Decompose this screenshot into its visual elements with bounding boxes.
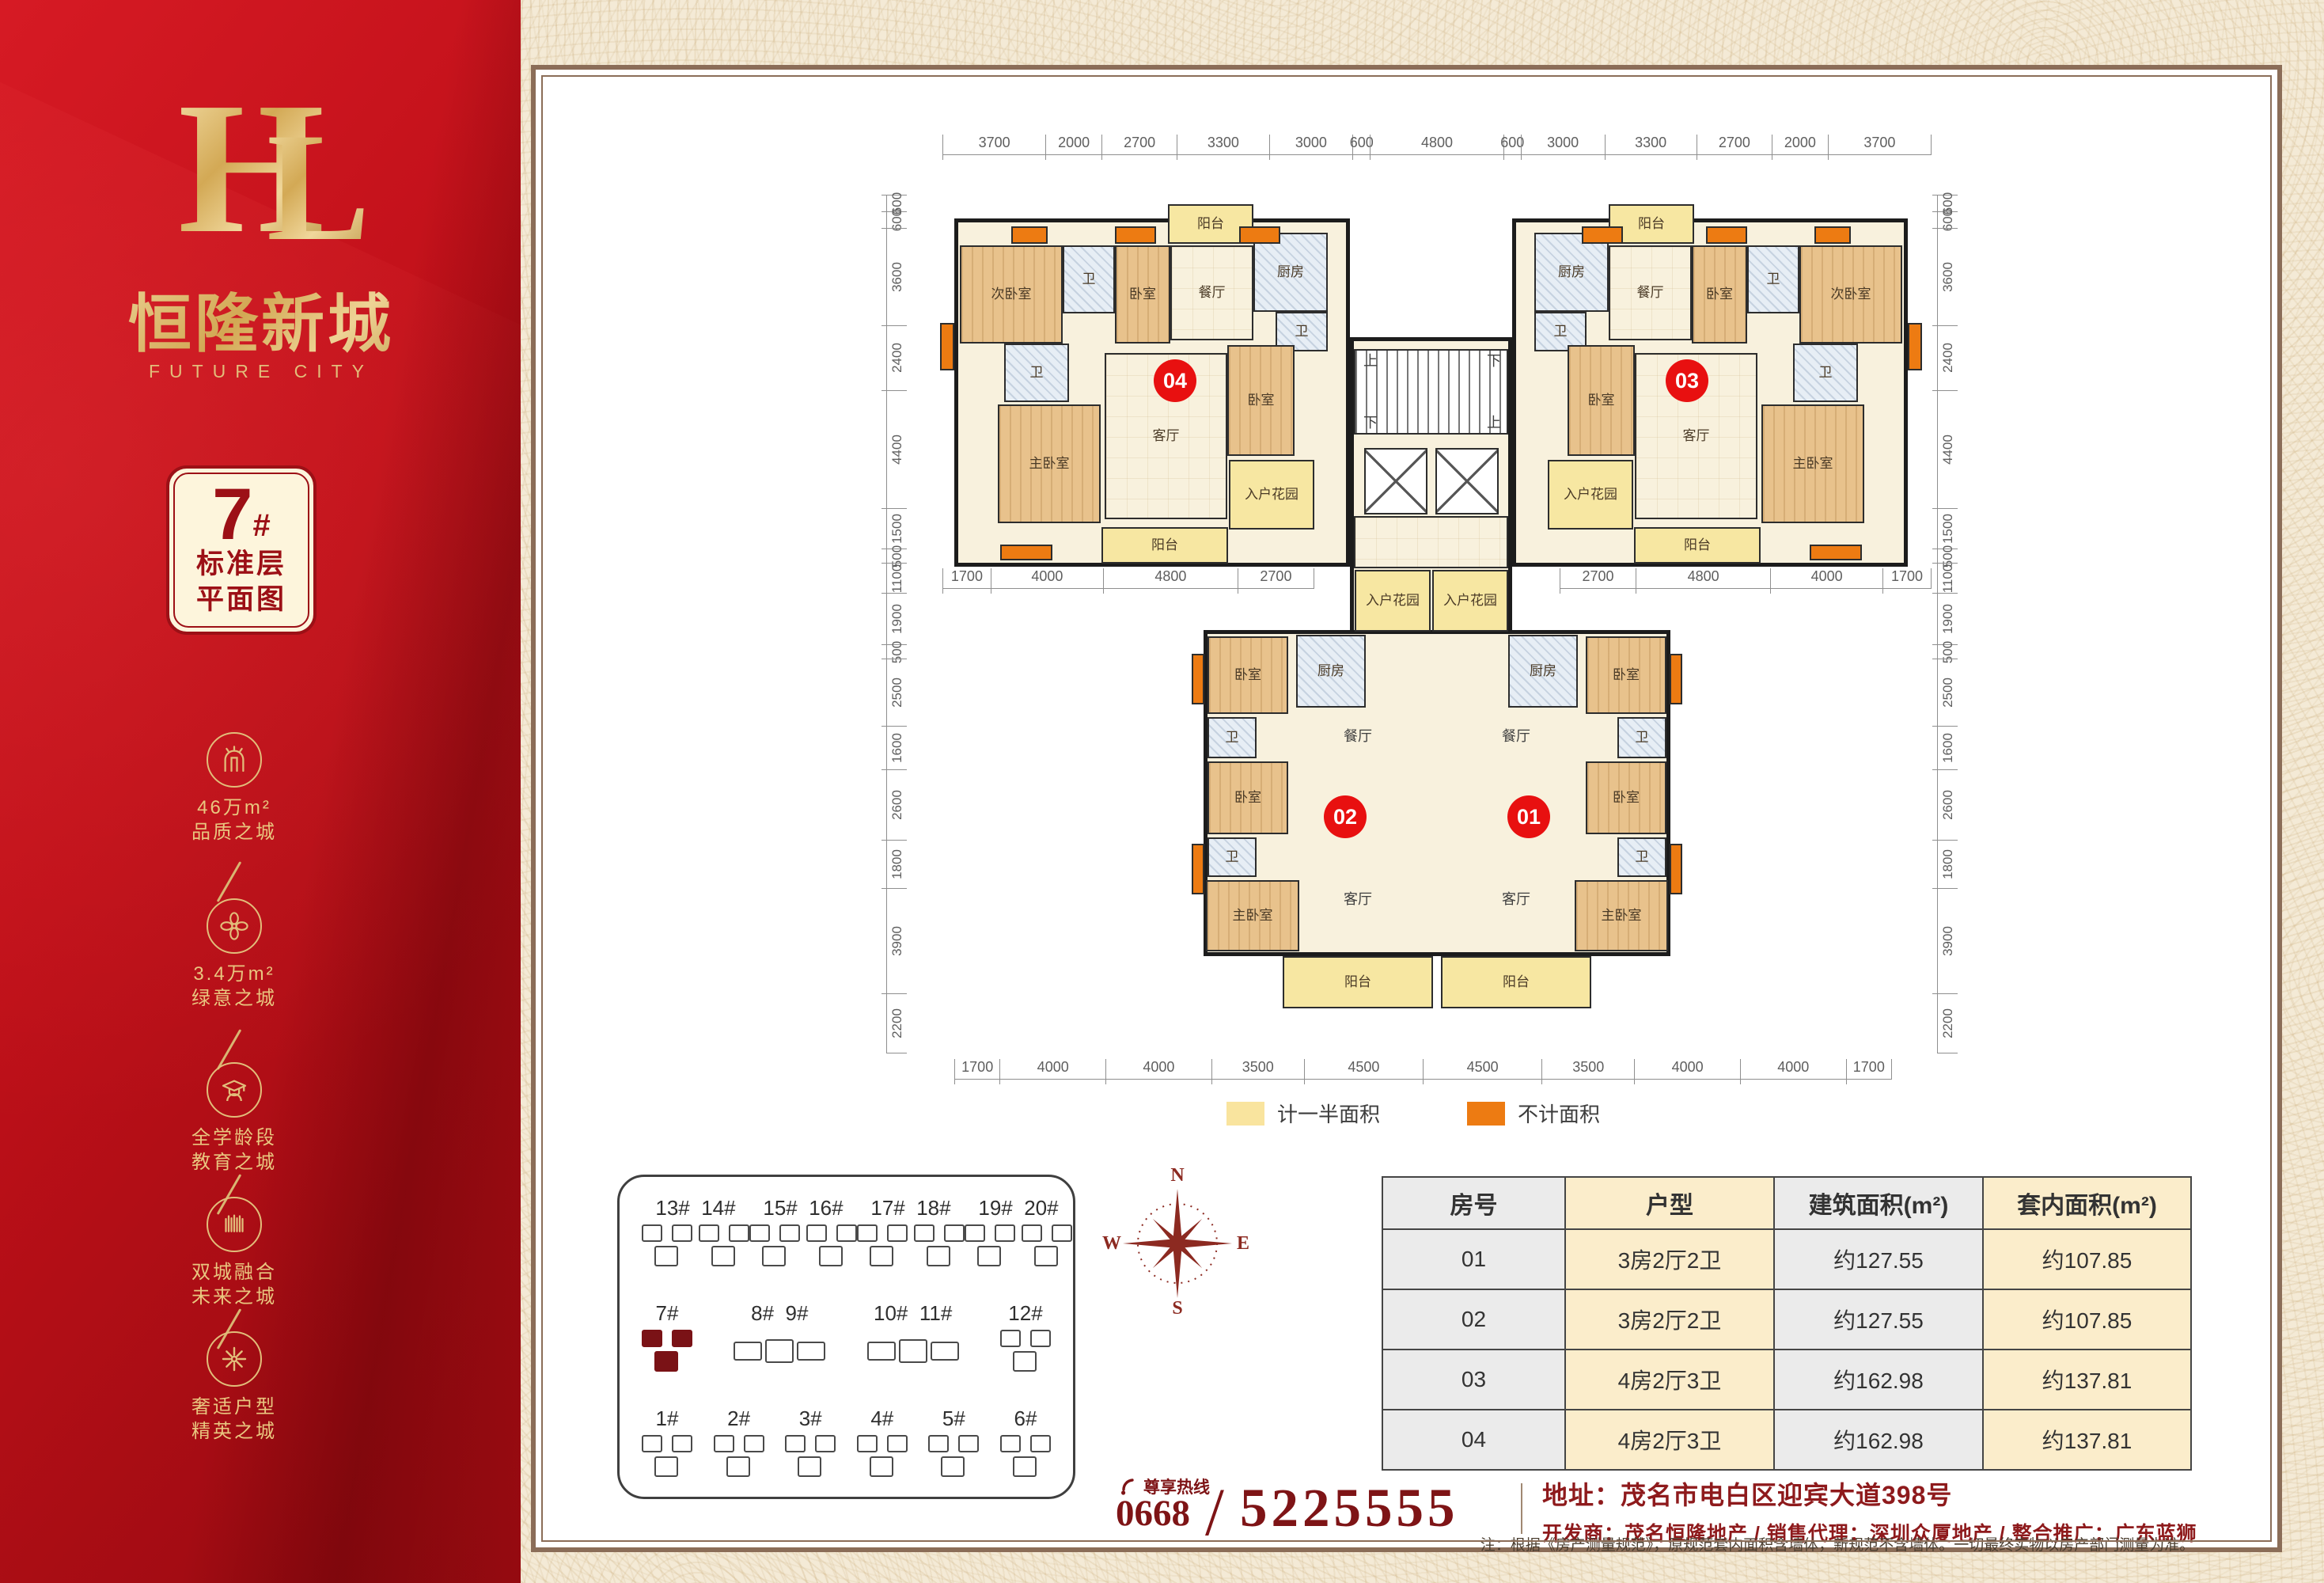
monogram-letter-l: L: [267, 104, 370, 271]
site-building-5#: 5#: [928, 1406, 979, 1478]
site-building-6#: 6#: [1000, 1406, 1051, 1478]
room-orange: [1814, 226, 1851, 244]
site-building-13#14#: 13# 14#: [642, 1196, 749, 1267]
dimension-ruler-mid-right: 2700480040001700: [1560, 568, 1932, 589]
legend-swatch: [1226, 1102, 1264, 1126]
compass-s: S: [1172, 1298, 1182, 1315]
unit-badge-02: 02: [1324, 795, 1367, 838]
phone-area-code: 0668: [1116, 1492, 1190, 1535]
feature-education: 全学龄段 教育之城: [116, 1062, 353, 1175]
room-orange: [1670, 844, 1682, 894]
dimension-segment: 2500: [886, 659, 907, 726]
room-orange: [1908, 323, 1922, 370]
city-bars-icon: [207, 1197, 262, 1252]
room-lift: [1364, 448, 1427, 514]
feature-line1: 46万m²: [116, 795, 353, 820]
room-卫: 卫: [1207, 837, 1257, 877]
dimension-segment: 2400: [886, 325, 907, 390]
floorplan: 3700200027003300300060048006003000330027…: [836, 100, 2007, 1152]
disclaimer-note: 注：根据《房产测量规范》，原规范套内面积含墙体，新规范不含墙体。一切最终实物以房…: [1469, 1533, 2205, 1555]
room-阳台: 阳台: [1283, 956, 1433, 1008]
legend: 计一半面积不计面积: [1226, 1099, 1600, 1128]
feature-quality: 46万m² 品质之城: [116, 732, 353, 845]
unit-badge-03: 03: [1666, 359, 1708, 402]
room-餐厅: 餐厅: [1609, 245, 1692, 340]
dimension-segment: 1100: [1937, 563, 1958, 593]
dimension-segment: 2200: [1937, 993, 1958, 1053]
dimension-segment: 2600: [1937, 769, 1958, 840]
dimension-ruler-right: 6006003600240044001500500110019005002500…: [1937, 195, 1958, 1053]
room-次卧室: 次卧室: [1799, 245, 1902, 344]
phone-number: 5225555: [1240, 1477, 1459, 1539]
room-orange: [1239, 226, 1280, 244]
dimension-segment: 1600: [1937, 726, 1958, 769]
table-cell: 约162.98: [1774, 1410, 1983, 1470]
room-orange: [1115, 226, 1156, 244]
dimension-segment: 2700: [1238, 568, 1314, 589]
dimension-segment: 1500: [1937, 508, 1958, 549]
site-building-15#16#: 15# 16#: [749, 1196, 857, 1267]
dimension-segment: 1500: [886, 508, 907, 549]
dimension-segment: 2200: [886, 993, 907, 1053]
dimension-segment: 3300: [1177, 135, 1268, 155]
room-卧室: 卧室: [1207, 761, 1288, 834]
badge-digit: 7: [212, 483, 252, 546]
feature-line1: 奢适户型: [116, 1395, 353, 1419]
dimension-segment: 500: [1937, 549, 1958, 563]
feature-elite: 奢适户型 精英之城: [116, 1331, 353, 1444]
room-卫: 卫: [1747, 245, 1799, 313]
table-cell: 3房2厅2卫: [1565, 1229, 1774, 1289]
table-row: 034房2厅3卫约162.98约137.81: [1382, 1350, 2191, 1410]
area-table: 房号户型建筑面积(m²)套内面积(m²)013房2厅2卫约127.55约107.…: [1382, 1176, 2192, 1471]
petal-star-icon: [207, 1331, 262, 1387]
site-building-10#11#: 10# 11#: [867, 1301, 959, 1372]
dimension-segment: 600: [886, 211, 907, 228]
table-cell: 约162.98: [1774, 1350, 1983, 1410]
room-主卧室: 主卧室: [1206, 880, 1299, 951]
dimension-segment: 1700: [954, 1059, 999, 1080]
building-badge-inner: 7 # 标准层 平面图: [173, 473, 309, 628]
room-卫: 卫: [1617, 717, 1666, 758]
room-卧室: 卧室: [1586, 761, 1666, 834]
table-cell: 4房2厅3卫: [1565, 1410, 1774, 1470]
room-卫: 卫: [1793, 344, 1858, 402]
dimension-segment: 600: [1937, 211, 1958, 228]
dimension-segment: 3900: [1937, 888, 1958, 993]
table-row: 023房2厅2卫约127.55约107.85: [1382, 1289, 2191, 1350]
room-orange: [1706, 226, 1747, 244]
feature-line1: 双城融合: [116, 1260, 353, 1285]
feature-line2: 精英之城: [116, 1419, 353, 1444]
site-building-17#18#: 17# 18#: [857, 1196, 965, 1267]
contact-divider: [1521, 1483, 1522, 1534]
dimension-segment: 3900: [886, 888, 907, 993]
room-卫: 卫: [1617, 837, 1666, 877]
table-cell: 约107.85: [1983, 1289, 2191, 1350]
room-卧室: 卧室: [1115, 245, 1170, 344]
room-卫: 卫: [1063, 245, 1115, 313]
room-阳台: 阳台: [1101, 527, 1228, 564]
room-下: 下: [1483, 351, 1505, 370]
dimension-segment: 2400: [1937, 325, 1958, 390]
dimension-segment: 1800: [1937, 840, 1958, 889]
room-厨房: 厨房: [1508, 635, 1578, 708]
dimension-segment: 2000: [1772, 135, 1828, 155]
dimension-segment: 2600: [886, 769, 907, 840]
compass-n: N: [1170, 1165, 1185, 1186]
dimension-segment: 3600: [1937, 228, 1958, 325]
dimension-segment: 4000: [999, 1059, 1105, 1080]
room-卧室: 卧室: [1227, 345, 1295, 456]
room-下: 下: [1359, 413, 1382, 432]
unit-badge-01: 01: [1507, 795, 1550, 838]
room-餐厅: 餐厅: [1483, 723, 1549, 749]
legend-item: 不计面积: [1467, 1099, 1600, 1128]
dimension-segment: 4800: [1370, 135, 1503, 155]
phone-slash: /: [1205, 1472, 1224, 1551]
room-主卧室: 主卧室: [1575, 880, 1668, 951]
room-主卧室: 主卧室: [998, 404, 1101, 523]
room-cream: [1354, 516, 1508, 568]
table-row: 044房2厅3卫约162.98约137.81: [1382, 1410, 2191, 1470]
dimension-segment: 2000: [1045, 135, 1101, 155]
dimension-segment: 4000: [1105, 1059, 1211, 1080]
dimension-segment: 1900: [886, 593, 907, 644]
dimension-segment: 600: [1352, 135, 1370, 155]
room-主卧室: 主卧室: [1761, 404, 1864, 523]
feature-line2: 品质之城: [116, 820, 353, 845]
dimension-segment: 1900: [1937, 593, 1958, 644]
room-卧室: 卧室: [1568, 345, 1635, 456]
divider-slash: [217, 861, 242, 902]
legend-swatch: [1467, 1102, 1505, 1126]
room-卧室: 卧室: [1692, 245, 1747, 344]
table-cell: 02: [1382, 1289, 1565, 1350]
room-入户花园: 入户花园: [1548, 460, 1633, 530]
room-厨房: 厨房: [1534, 233, 1609, 312]
feature-green: 3.4万m² 绿意之城: [116, 898, 353, 1011]
room-入户花园: 入户花园: [1432, 570, 1508, 632]
room-orange: [1582, 226, 1623, 244]
brand-monogram: H L: [178, 70, 376, 283]
table-cell: 约137.81: [1983, 1350, 2191, 1410]
room-卧室: 卧室: [1207, 636, 1288, 714]
feature-line1: 3.4万m²: [116, 962, 353, 986]
compass-w: W: [1102, 1233, 1121, 1254]
table-cell: 04: [1382, 1410, 1565, 1470]
dimension-segment: 2700: [1560, 568, 1636, 589]
dimension-segment: 4000: [1740, 1059, 1846, 1080]
room-入户花园: 入户花园: [1355, 570, 1431, 632]
site-building-8#9#: 8# 9#: [734, 1301, 825, 1372]
room-orange: [1192, 844, 1204, 894]
dimension-segment: 1700: [942, 568, 991, 589]
flower-icon: [207, 898, 262, 954]
site-building-12#: 12#: [1000, 1301, 1051, 1372]
dimension-ruler-left: 6006003600240044001500500110019005002500…: [886, 195, 907, 1053]
room-餐厅: 餐厅: [1325, 723, 1391, 749]
dimension-segment: 2700: [1697, 135, 1772, 155]
dimension-segment: 4000: [1634, 1059, 1740, 1080]
dimension-ruler-bottom: 1700400040003500450045003500400040001700: [954, 1059, 1892, 1080]
room-卫: 卫: [1207, 717, 1257, 758]
dimension-segment: 1800: [886, 840, 907, 889]
table-cell: 约107.85: [1983, 1229, 2191, 1289]
dimension-segment: 2700: [1101, 135, 1177, 155]
dimension-segment: 3500: [1211, 1059, 1304, 1080]
table-cell: 01: [1382, 1229, 1565, 1289]
table-cell: 3房2厅2卫: [1565, 1289, 1774, 1350]
building-number-badge: 7 # 标准层 平面图: [166, 465, 317, 635]
dimension-segment: 4800: [1636, 568, 1770, 589]
room-阳台: 阳台: [1634, 527, 1761, 564]
site-map: 13# 14#15# 16#17# 18#19# 20#7#8# 9#10# 1…: [617, 1175, 1075, 1499]
poster-page: H L 恒隆新城 FUTURE CITY 7 # 标准层 平面图 46万m²: [0, 0, 2324, 1583]
compass-rose: N E S W: [1102, 1165, 1253, 1315]
dimension-segment: 3000: [1269, 135, 1353, 155]
dimension-segment: 4400: [886, 390, 907, 508]
table-cell: 约127.55: [1774, 1229, 1983, 1289]
room-厨房: 厨房: [1253, 233, 1328, 312]
room-阳台: 阳台: [1441, 956, 1591, 1008]
compass-e: E: [1237, 1233, 1249, 1254]
table-cell: 约137.81: [1983, 1410, 2191, 1470]
arch-gate-icon: [207, 732, 262, 788]
site-building-7#: 7#: [642, 1301, 692, 1372]
dimension-segment: 4000: [1770, 568, 1882, 589]
address-line: 地址：茂名市电白区迎宾大道398号: [1542, 1475, 2197, 1512]
brand-sidebar: H L 恒隆新城 FUTURE CITY 7 # 标准层 平面图 46万m²: [0, 0, 521, 1583]
dimension-segment: 500: [886, 644, 907, 659]
room-orange: [1011, 226, 1048, 244]
room-餐厅: 餐厅: [1170, 245, 1253, 340]
brand-name: 恒隆新城: [71, 273, 451, 365]
room-orange: [1192, 654, 1204, 704]
feature-twin-city: 双城融合 未来之城: [116, 1197, 353, 1309]
dimension-segment: 3700: [942, 135, 1045, 155]
dimension-segment: 3300: [1605, 135, 1697, 155]
badge-line1: 标准层: [196, 546, 286, 582]
dimension-segment: 3700: [1828, 135, 1932, 155]
dimension-segment: 1700: [1846, 1059, 1892, 1080]
dimension-ruler-top: 3700200027003300300060048006003000330027…: [942, 135, 1932, 155]
site-building-19#20#: 19# 20#: [965, 1196, 1072, 1267]
room-orange: [1000, 545, 1052, 560]
dimension-segment: 1700: [1882, 568, 1932, 589]
dimension-segment: 3600: [886, 228, 907, 325]
feature-line1: 全学龄段: [116, 1126, 353, 1150]
site-building-2#: 2#: [714, 1406, 764, 1478]
graduate-icon: [207, 1062, 262, 1118]
dimension-segment: 600: [1503, 135, 1521, 155]
badge-hash: #: [252, 510, 270, 541]
table-header: 建筑面积(m²): [1774, 1177, 1983, 1229]
badge-line2: 平面图: [196, 582, 286, 617]
unit-badge-04: 04: [1154, 359, 1196, 402]
site-building-1#: 1#: [642, 1406, 692, 1478]
room-卫: 卫: [1004, 344, 1069, 402]
room-入户花园: 入户花园: [1229, 460, 1314, 530]
dimension-segment: 3500: [1541, 1059, 1634, 1080]
room-厨房: 厨房: [1296, 635, 1366, 708]
dimension-segment: 4800: [1103, 568, 1238, 589]
dimension-segment: 1100: [886, 563, 907, 593]
dimension-segment: 4000: [991, 568, 1103, 589]
site-building-4#: 4#: [857, 1406, 908, 1478]
table-cell: 03: [1382, 1350, 1565, 1410]
table-cell: 4房2厅3卫: [1565, 1350, 1774, 1410]
room-orange: [1670, 654, 1682, 704]
room-卧室: 卧室: [1586, 636, 1666, 714]
table-header: 套内面积(m²): [1983, 1177, 2191, 1229]
badge-number: 7 #: [212, 483, 270, 546]
content-panel: 3700200027003300300060048006003000330027…: [531, 65, 2282, 1552]
dimension-segment: 4500: [1423, 1059, 1541, 1080]
brand-name-en: FUTURE CITY: [71, 361, 451, 382]
room-orange: [1810, 545, 1862, 560]
table-cell: 约127.55: [1774, 1289, 1983, 1350]
dimension-segment: 4500: [1304, 1059, 1423, 1080]
room-orange: [940, 323, 954, 370]
room-客厅: 客厅: [1325, 886, 1391, 912]
dimension-ruler-mid-left: 1700400048002700: [942, 568, 1314, 589]
dimension-segment: 500: [1937, 644, 1958, 659]
feature-line2: 教育之城: [116, 1150, 353, 1175]
feature-line2: 绿意之城: [116, 986, 353, 1011]
room-次卧室: 次卧室: [960, 245, 1063, 344]
table-header: 户型: [1565, 1177, 1774, 1229]
dimension-segment: 3000: [1521, 135, 1605, 155]
room-客厅: 客厅: [1483, 886, 1549, 912]
site-building-3#: 3#: [785, 1406, 836, 1478]
dimension-segment: 2500: [1937, 659, 1958, 726]
legend-item: 计一半面积: [1226, 1099, 1380, 1128]
table-row: 013房2厅2卫约127.55约107.85: [1382, 1229, 2191, 1289]
feature-line2: 未来之城: [116, 1285, 353, 1309]
room-lift: [1435, 448, 1499, 514]
dimension-segment: 4400: [1937, 390, 1958, 508]
dimension-segment: 1600: [886, 726, 907, 769]
table-header: 房号: [1382, 1177, 1565, 1229]
room-上: 上: [1483, 413, 1505, 432]
dimension-segment: 500: [886, 549, 907, 563]
room-上: 上: [1359, 351, 1382, 370]
